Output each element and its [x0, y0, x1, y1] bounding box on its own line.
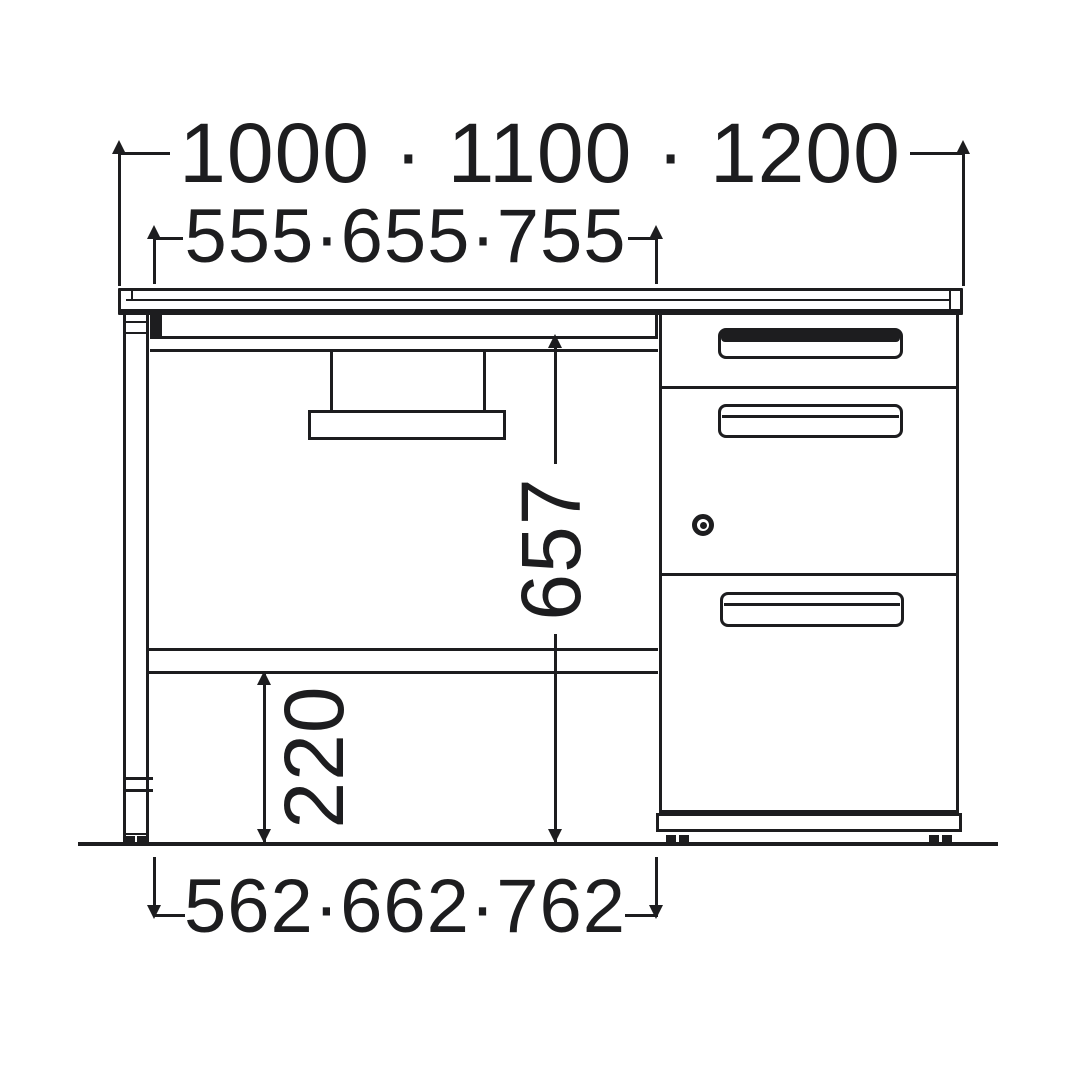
desk-top-edge-line: [126, 299, 950, 301]
top-clear-width-label: 555·655·755: [183, 200, 628, 274]
drawer1-handle-shadow: [721, 330, 900, 342]
desk-top-end-tick-right: [949, 291, 951, 311]
desk-top: [118, 288, 963, 315]
arrow-down-icon: [147, 905, 161, 919]
pedestal: [659, 315, 959, 813]
pedestal-divider-line: [659, 573, 959, 576]
pedestal-plinth: [656, 813, 962, 832]
left-leg-bracket-line: [126, 321, 146, 323]
drawer2-handle: [718, 404, 903, 438]
floor-line: [78, 842, 998, 846]
under-top-height-label: 657: [511, 464, 591, 634]
arrow-up-icon: [257, 671, 271, 685]
left-leg-joint-line: [123, 777, 153, 780]
overall-width-label: 1000 · 1100 · 1200: [170, 110, 910, 196]
top-clear-width-extension-line-right: [655, 237, 658, 284]
base-clearance-label: 220: [274, 687, 354, 827]
lock-keyhole-dot: [700, 522, 707, 529]
left-leg-inner-line: [146, 315, 149, 843]
arrow-down-icon: [649, 905, 663, 919]
drawer3-handle-line: [724, 603, 900, 606]
drawer2-handle-line: [722, 415, 899, 418]
arrow-up-icon: [649, 225, 663, 239]
arrow-up-icon: [548, 334, 562, 348]
arrow-up-icon: [112, 140, 126, 154]
desk-top-end-tick-left: [131, 291, 133, 299]
arrow-up-icon: [147, 225, 161, 239]
left-leg-joint-line: [123, 789, 153, 792]
apron-bottom-line: [150, 336, 658, 339]
arrow-up-icon: [956, 140, 970, 154]
tray-bracket-stem-right: [483, 351, 486, 411]
tray-bracket-stem-left: [330, 351, 333, 411]
center-tray: [308, 410, 506, 440]
desk-dimension-diagram: 1000 · 1100 · 1200 555·655·755: [0, 0, 1080, 1080]
top-clear-width-extension-line-left: [153, 237, 156, 284]
drawer3-handle: [720, 592, 904, 627]
arrow-down-icon: [548, 829, 562, 843]
overall-width-extension-line-left: [118, 152, 121, 286]
modesty-panel-bottom-line: [149, 648, 658, 651]
left-leg-outer-line: [123, 315, 126, 843]
lower-panel-top-line: [149, 671, 658, 674]
left-leg-bracket-line: [126, 332, 146, 334]
left-leg-bottom-cap: [123, 833, 149, 835]
pedestal-divider-line: [659, 386, 959, 389]
under-top-frame-line: [150, 349, 658, 352]
base-clearance-dimension-line: [263, 673, 266, 843]
arrow-down-icon: [257, 829, 271, 843]
knee-width-label: 562·662·762: [185, 871, 625, 943]
overall-width-extension-line-right: [962, 152, 965, 286]
